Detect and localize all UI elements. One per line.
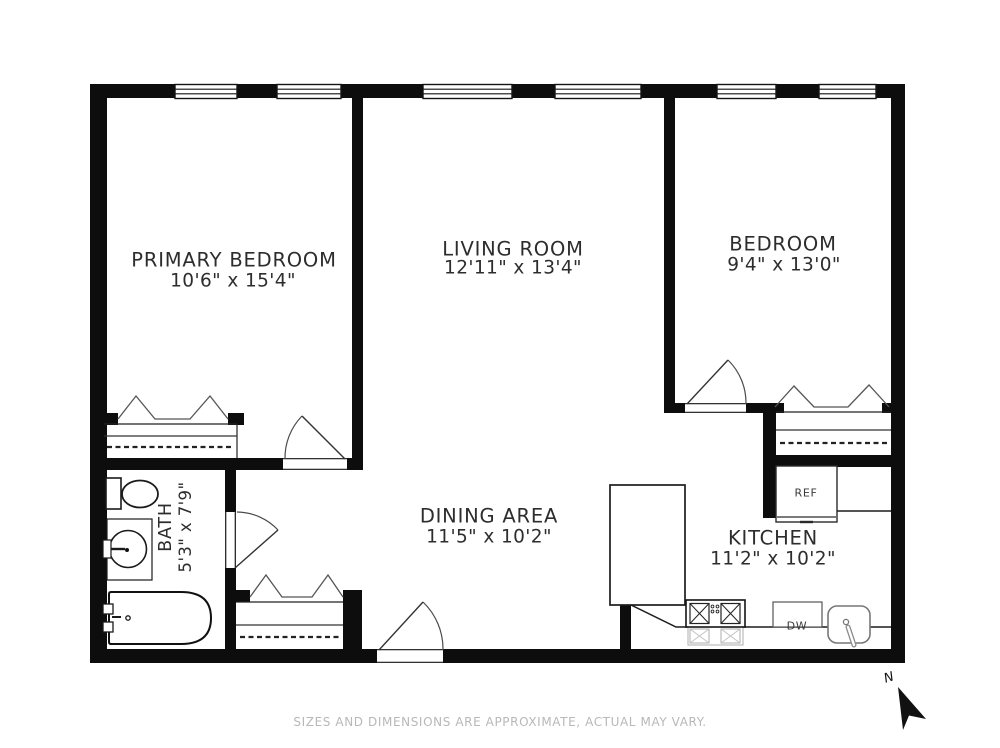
wall-bath-right-upper	[225, 470, 236, 512]
wall-primary-living	[352, 98, 363, 470]
bifold-doors-icon	[250, 575, 343, 597]
bedroom-closet	[775, 385, 891, 443]
room-label-bath-block: BATH 5'3" x 7'9"	[157, 482, 195, 573]
toilet-icon	[106, 478, 158, 509]
wall-bedroom-closet-bottom	[763, 455, 891, 467]
room-label-bedroom: BEDROOM	[729, 233, 836, 256]
window-icon	[175, 85, 237, 99]
door-leaf	[235, 530, 278, 568]
disclaimer-text: SIZES AND DIMENSIONS ARE APPROXIMATE, AC…	[293, 715, 706, 729]
window-icon	[717, 85, 776, 99]
bath-door	[224, 512, 278, 568]
floor-plan-drawing	[0, 0, 1000, 748]
wall-left	[90, 84, 107, 663]
room-label-dining-area: DINING AREA	[420, 505, 558, 528]
door-leaf	[379, 602, 423, 650]
wall-primary-bottom-right	[347, 458, 363, 470]
floor-plan-page: PRIMARY BEDROOM 10'6" x 15'4" LIVING ROO…	[0, 0, 1000, 748]
door-leaf	[687, 360, 728, 404]
door-leaf	[302, 416, 345, 459]
door-arc	[728, 360, 746, 404]
stove-icon	[686, 600, 745, 645]
bedroom-door	[685, 360, 746, 414]
wall-bottom	[90, 649, 905, 663]
wall-primary-bottom-left	[90, 458, 283, 470]
door-arc	[237, 512, 278, 530]
kitchen-peninsula-counter	[610, 485, 685, 605]
refrigerator-label: REF	[794, 487, 817, 500]
outer-walls	[90, 84, 905, 663]
wall-dining-closet-stub	[236, 590, 250, 602]
room-dims-living-room: 12'11" x 13'4"	[444, 258, 582, 279]
room-label-kitchen: KITCHEN	[728, 527, 818, 550]
wall-bedroom-bottom-left	[664, 403, 685, 413]
room-dims-bath: 5'3" x 7'9"	[176, 482, 195, 573]
window-icon	[277, 85, 341, 99]
window-icon	[819, 85, 876, 99]
wall-primary-closet-stub-right	[228, 413, 244, 425]
room-label-primary-bedroom: PRIMARY BEDROOM	[131, 249, 336, 272]
primary-bedroom-door	[283, 416, 347, 471]
bathtub-icon	[103, 592, 211, 644]
room-dims-kitchen: 11'2" x 10'2"	[710, 549, 836, 570]
room-dims-dining-area: 11'5" x 10'2"	[426, 527, 552, 548]
window-icon	[423, 85, 512, 99]
bifold-doors-icon	[775, 385, 889, 407]
wall-primary-closet-stub-left	[104, 413, 118, 425]
window-icon	[555, 85, 641, 99]
dining-area-closet	[236, 575, 343, 637]
room-label-bath: BATH	[157, 482, 176, 573]
door-arc	[285, 416, 302, 459]
entry-door	[377, 602, 443, 664]
bathroom-sink-icon	[103, 519, 152, 580]
room-dims-bedroom: 9'4" x 13'0"	[727, 255, 841, 276]
wall-right	[891, 84, 905, 663]
wall-bedroom-left	[664, 98, 675, 403]
room-dims-primary-bedroom: 10'6" x 15'4"	[170, 271, 296, 292]
dishwasher-label: DW	[787, 620, 808, 633]
bifold-doors-icon	[118, 396, 228, 419]
north-arrow-icon	[898, 687, 926, 730]
wall-kitchen-counter-stub	[620, 603, 631, 649]
wall-bath-right-lower	[225, 568, 236, 649]
wall-dining-closet-right	[343, 590, 362, 649]
kitchen-sink-icon	[828, 606, 870, 645]
door-arc	[423, 602, 443, 650]
primary-bedroom-closet	[104, 396, 237, 458]
